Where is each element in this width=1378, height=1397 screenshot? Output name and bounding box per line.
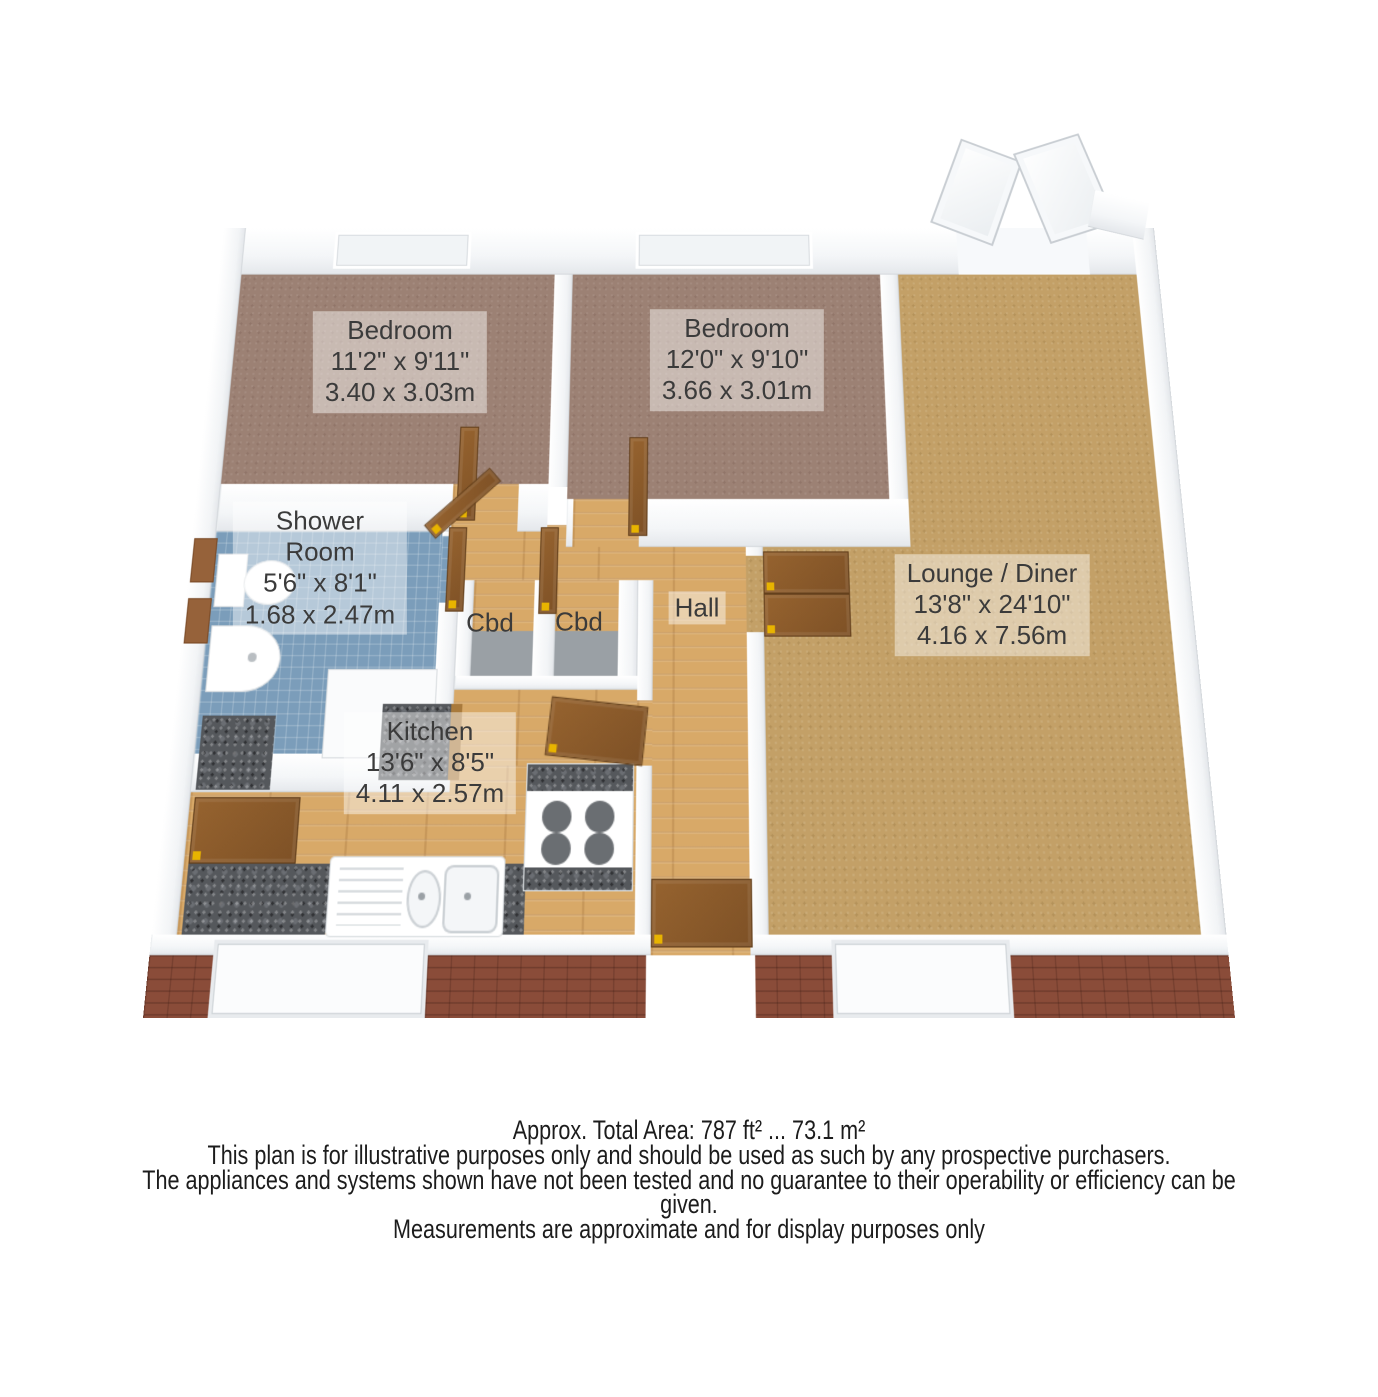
shower-metric: 1.68 x 2.47m xyxy=(245,599,395,630)
cbd2-door xyxy=(538,527,559,614)
bedroom2-name: Bedroom xyxy=(662,313,812,344)
cbd2-label: Cbd xyxy=(549,605,609,638)
disclaimer-line-3: Measurements are approximate and for dis… xyxy=(138,1217,1240,1242)
counter-bottom-left xyxy=(182,864,330,935)
hob-burner-3 xyxy=(541,833,571,865)
cbd1-name: Cbd xyxy=(466,607,514,638)
footer-disclaimer: Approx. Total Area: 787 ft² ... 73.1 m² … xyxy=(138,1118,1240,1242)
lounge-name: Lounge / Diner xyxy=(907,558,1078,589)
shower-room-label: Shower Room 5'6" x 8'1" 1.68 x 2.47m xyxy=(233,502,407,635)
bedroom1-window xyxy=(333,232,472,269)
bedroom1-name: Bedroom xyxy=(325,315,475,346)
hob-burner-1 xyxy=(542,801,572,833)
sink-bowl-large xyxy=(442,865,500,933)
shower-imperial: 5'6" x 8'1" xyxy=(245,568,395,599)
sink-drainer xyxy=(336,867,404,925)
kitchen-cupboard-unit xyxy=(188,797,300,864)
lounge-floor-upper xyxy=(898,275,1163,547)
kitchen-metric: 4.11 x 2.57m xyxy=(356,779,504,810)
kitchen-imperial: 13'6" x 8'5" xyxy=(356,747,504,778)
hob-unit xyxy=(523,763,634,891)
hob-counter-top xyxy=(527,764,633,791)
bedroom2-door xyxy=(628,437,648,536)
cbd2-name: Cbd xyxy=(555,606,603,637)
bedroom2-label: Bedroom 12'0" x 9'10" 3.66 x 3.01m xyxy=(650,309,824,411)
wall-kitchen-hall-upper xyxy=(637,580,653,700)
wall-kitchen-hall-lower xyxy=(635,766,652,935)
bedroom1-imperial: 11'2" x 9'11" xyxy=(325,346,475,377)
hall-name: Hall xyxy=(675,592,720,623)
kitchen-label: Kitchen 13'6" x 8'5" 4.11 x 2.57m xyxy=(344,712,516,814)
front-door xyxy=(651,879,753,948)
kitchen-sink-unit xyxy=(325,856,506,937)
wall-cbd-bottom xyxy=(454,676,637,690)
cbd1-label: Cbd xyxy=(460,606,520,639)
disclaimer-line-1: This plan is for illustrative purposes o… xyxy=(138,1143,1240,1168)
bedroom1-metric: 3.40 x 3.03m xyxy=(325,378,475,409)
counter-left-top xyxy=(196,716,276,790)
kitchen-door xyxy=(545,696,649,766)
lounge-imperial: 13'8" x 24'10" xyxy=(907,589,1078,620)
hob-burner-4 xyxy=(584,833,614,865)
disclaimer-line-2: The appliances and systems shown have no… xyxy=(138,1168,1240,1218)
hob-burner-2 xyxy=(585,801,615,833)
bedroom2-imperial: 12'0" x 9'10" xyxy=(662,344,812,375)
shower-name-1: Shower xyxy=(245,506,395,537)
lounge-label: Lounge / Diner 13'8" x 24'10" 4.16 x 7.5… xyxy=(895,554,1090,656)
cbd1-door xyxy=(445,527,467,611)
lounge-door-opening xyxy=(746,556,764,632)
bedroom2-window xyxy=(636,232,814,269)
bedroom2-metric: 3.66 x 3.01m xyxy=(662,376,812,407)
lounge-double-door-bottom xyxy=(764,594,852,637)
front-door-step xyxy=(646,955,756,1018)
hob-counter-bottom xyxy=(524,867,632,890)
shower-window-1 xyxy=(190,538,218,582)
shower-window-2 xyxy=(184,598,212,643)
shower-name-2: Room xyxy=(245,537,395,568)
lounge-double-door-top xyxy=(763,551,850,593)
kitchen-window xyxy=(208,940,429,1018)
kitchen-name: Kitchen xyxy=(356,716,504,747)
wall-cbd-right xyxy=(617,580,638,690)
bedroom1-label: Bedroom 11'2" x 9'11" 3.40 x 3.03m xyxy=(313,311,487,413)
lounge-metric: 4.16 x 7.56m xyxy=(907,621,1078,652)
lounge-window xyxy=(831,940,1014,1018)
hall-label: Hall xyxy=(669,591,726,624)
